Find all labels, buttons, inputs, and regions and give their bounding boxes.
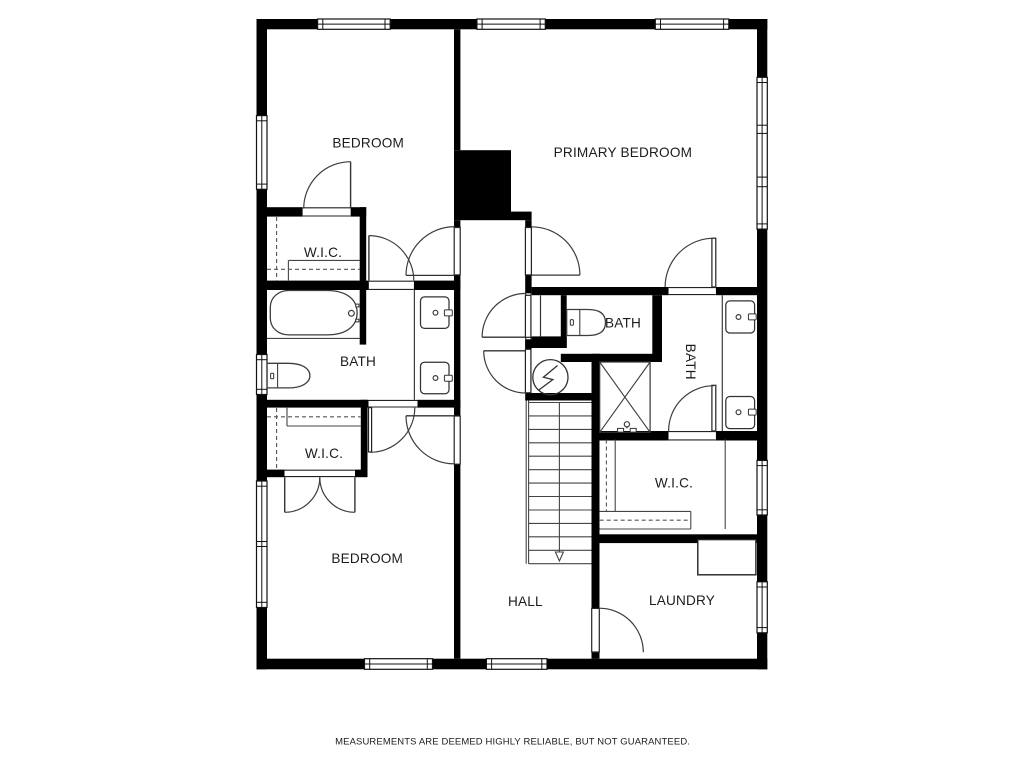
svg-text:W.I.C.: W.I.C. — [655, 475, 693, 490]
svg-text:BATH: BATH — [683, 344, 698, 380]
svg-text:BATH: BATH — [605, 315, 641, 330]
svg-text:HALL: HALL — [508, 594, 543, 609]
svg-text:MEASUREMENTS ARE DEEMED HIGHLY: MEASUREMENTS ARE DEEMED HIGHLY RELIABLE,… — [335, 737, 690, 748]
svg-text:W.I.C.: W.I.C. — [304, 245, 342, 260]
svg-text:BEDROOM: BEDROOM — [332, 136, 404, 151]
svg-text:LAUNDRY: LAUNDRY — [649, 593, 715, 608]
svg-text:W.I.C.: W.I.C. — [305, 446, 343, 461]
svg-text:PRIMARY BEDROOM: PRIMARY BEDROOM — [554, 145, 692, 160]
svg-text:BEDROOM: BEDROOM — [331, 551, 403, 566]
svg-text:BATH: BATH — [340, 354, 376, 369]
